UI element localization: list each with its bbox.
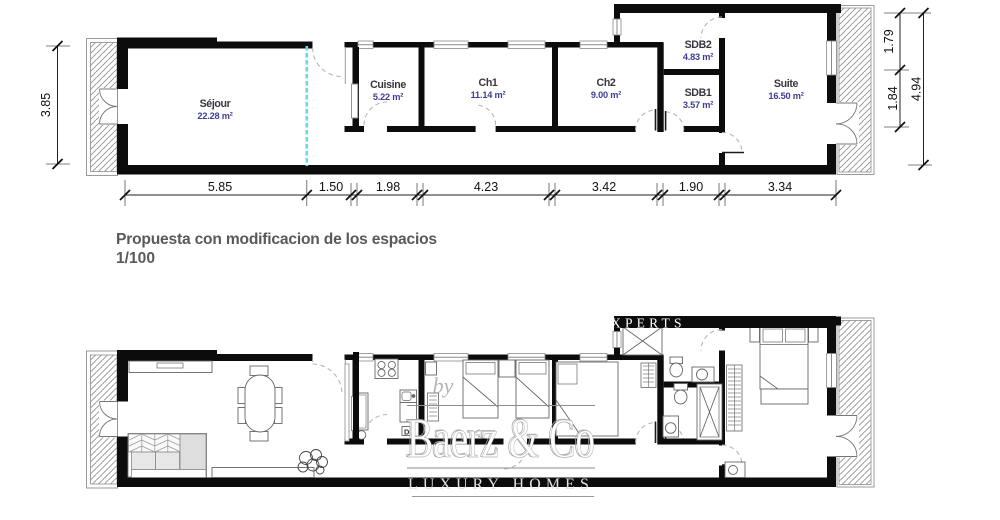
svg-text:4.94: 4.94 xyxy=(910,77,924,101)
svg-text:1.79: 1.79 xyxy=(882,29,896,53)
svg-text:Ch2: Ch2 xyxy=(597,77,616,89)
svg-text:1.84: 1.84 xyxy=(886,86,900,110)
svg-text:1.98: 1.98 xyxy=(376,180,400,194)
svg-text:9.00 m²: 9.00 m² xyxy=(591,90,621,100)
svg-text:Propuesta con modificacion de: Propuesta con modificacion de los espaci… xyxy=(116,231,437,248)
svg-text:5.22 m²: 5.22 m² xyxy=(373,92,403,102)
svg-text:22.28 m²: 22.28 m² xyxy=(197,111,232,121)
svg-text:Séjour: Séjour xyxy=(200,98,231,110)
svg-text:3.57 m²: 3.57 m² xyxy=(683,100,713,110)
svg-text:1.90: 1.90 xyxy=(679,180,703,194)
svg-text:1.50: 1.50 xyxy=(319,180,343,194)
svg-text:SDB1: SDB1 xyxy=(685,87,712,99)
svg-text:3.85: 3.85 xyxy=(39,93,53,117)
svg-text:Suite: Suite xyxy=(774,78,799,90)
svg-text:3.34: 3.34 xyxy=(768,180,792,194)
svg-text:16.50 m²: 16.50 m² xyxy=(768,91,803,101)
svg-text:Ch1: Ch1 xyxy=(479,77,498,89)
svg-text:3.42: 3.42 xyxy=(592,180,616,194)
svg-text:5.85: 5.85 xyxy=(208,180,232,194)
svg-text:by: by xyxy=(433,373,454,398)
svg-text:LUXURY HOMES: LUXURY HOMES xyxy=(408,476,594,493)
svg-text:4.23: 4.23 xyxy=(474,180,498,194)
svg-text:Cuisine: Cuisine xyxy=(370,79,406,91)
svg-text:4.83 m²: 4.83 m² xyxy=(683,52,713,62)
svg-text:SDB2: SDB2 xyxy=(685,39,712,51)
svg-text:1/100: 1/100 xyxy=(116,250,155,267)
svg-text:11.14 m²: 11.14 m² xyxy=(471,90,506,100)
svg-text:XPERTS: XPERTS xyxy=(611,316,686,331)
svg-text:Baerz & Co: Baerz & Co xyxy=(407,408,595,470)
